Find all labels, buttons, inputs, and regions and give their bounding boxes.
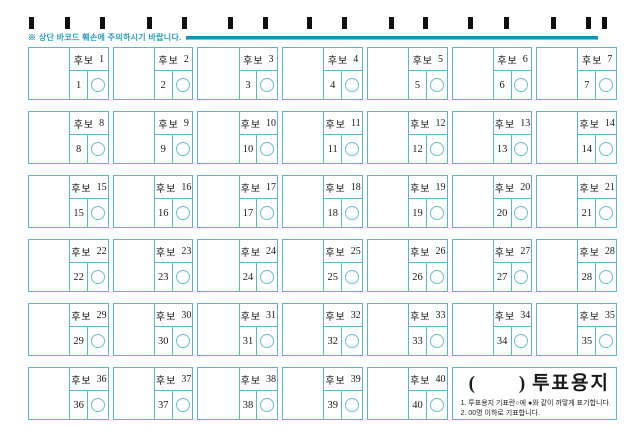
candidate-cell: 후보 10 10 bbox=[197, 111, 278, 164]
candidate-cell: 후보 9 9 bbox=[113, 111, 194, 164]
candidate-name-area bbox=[537, 112, 578, 163]
candidate-cell: 후보 22 22 bbox=[28, 239, 109, 292]
candidate-label-prefix: 후보 bbox=[325, 180, 345, 195]
mark-circle[interactable] bbox=[91, 142, 105, 156]
candidate-cell: 후보 16 16 bbox=[113, 175, 194, 228]
mark-circle[interactable] bbox=[599, 206, 613, 220]
candidate-info: 후보 15 15 bbox=[70, 176, 108, 227]
mark-area[interactable] bbox=[596, 263, 616, 291]
mark-circle[interactable] bbox=[260, 78, 274, 92]
candidate-number: 13 bbox=[494, 135, 512, 163]
candidate-label-prefix: 후보 bbox=[328, 52, 348, 67]
candidate-label-prefix: 후보 bbox=[325, 308, 345, 323]
mark-row: 30 bbox=[155, 327, 193, 355]
candidate-label: 후보 26 bbox=[409, 240, 447, 263]
mark-circle[interactable] bbox=[430, 78, 444, 92]
candidate-name-area bbox=[114, 176, 155, 227]
mark-row: 22 bbox=[70, 263, 108, 291]
candidate-label: 후보 6 bbox=[494, 48, 532, 71]
candidate-label: 후보 39 bbox=[324, 368, 362, 391]
candidate-label-number: 22 bbox=[97, 246, 107, 257]
candidate-cell: 후보 26 26 bbox=[367, 239, 448, 292]
candidate-number: 5 bbox=[409, 71, 427, 99]
candidate-label-prefix: 후보 bbox=[413, 52, 433, 67]
mark-circle[interactable] bbox=[260, 142, 274, 156]
candidate-label-prefix: 후보 bbox=[410, 308, 430, 323]
candidate-label: 후보 31 bbox=[240, 304, 278, 327]
candidate-label: 후보 7 bbox=[578, 48, 616, 71]
mark-row: 33 bbox=[409, 327, 447, 355]
candidate-label-prefix: 후보 bbox=[241, 244, 261, 259]
candidate-label-prefix: 후보 bbox=[410, 372, 430, 387]
instruction-line-2: 2. 00명 이하로 기표합니다. bbox=[461, 409, 610, 417]
candidate-info: 후보 19 19 bbox=[409, 176, 447, 227]
candidate-label: 후보 13 bbox=[494, 112, 532, 135]
barcode-strip bbox=[0, 0, 630, 32]
mark-area[interactable] bbox=[512, 327, 532, 355]
candidate-cell: 후보 23 23 bbox=[113, 239, 194, 292]
candidate-label: 후보 24 bbox=[240, 240, 278, 263]
mark-circle[interactable] bbox=[176, 78, 190, 92]
mark-circle[interactable] bbox=[514, 142, 528, 156]
candidate-number: 33 bbox=[409, 327, 427, 355]
candidate-label-number: 27 bbox=[520, 246, 530, 257]
mark-row: 3 bbox=[240, 71, 278, 99]
mark-circle[interactable] bbox=[176, 206, 190, 220]
mark-area[interactable] bbox=[88, 391, 108, 419]
candidate-label-prefix: 후보 bbox=[325, 372, 345, 387]
candidate-label-number: 17 bbox=[266, 182, 276, 193]
mark-row: 34 bbox=[494, 327, 532, 355]
candidate-number: 32 bbox=[324, 327, 342, 355]
mark-row: 6 bbox=[494, 71, 532, 99]
candidate-label-prefix: 후보 bbox=[158, 116, 178, 131]
candidate-number: 36 bbox=[70, 391, 88, 419]
candidate-cell: 후보 25 25 bbox=[282, 239, 363, 292]
mark-circle[interactable] bbox=[260, 270, 274, 284]
mark-circle[interactable] bbox=[430, 270, 444, 284]
candidate-label-number: 34 bbox=[520, 310, 530, 321]
mark-circle[interactable] bbox=[345, 78, 359, 92]
candidate-label-prefix: 후보 bbox=[495, 180, 515, 195]
candidate-name-area bbox=[29, 240, 70, 291]
candidate-label-number: 14 bbox=[605, 118, 615, 129]
mark-area[interactable] bbox=[88, 135, 108, 163]
mark-circle[interactable] bbox=[176, 334, 190, 348]
candidate-label-number: 25 bbox=[351, 246, 361, 257]
candidate-name-area bbox=[114, 368, 155, 419]
candidate-label: 후보 35 bbox=[578, 304, 616, 327]
mark-row: 18 bbox=[324, 199, 362, 227]
candidate-label-prefix: 후보 bbox=[497, 52, 517, 67]
title-label: 투표용지 bbox=[532, 372, 610, 396]
mark-area[interactable] bbox=[342, 327, 362, 355]
candidate-info: 후보 6 6 bbox=[494, 48, 532, 99]
mark-area[interactable] bbox=[173, 71, 193, 99]
candidate-info: 후보 10 10 bbox=[240, 112, 278, 163]
candidate-cell: 후보 34 34 bbox=[452, 303, 533, 356]
mark-area[interactable] bbox=[596, 199, 616, 227]
candidate-label: 후보 10 bbox=[240, 112, 278, 135]
mark-circle[interactable] bbox=[430, 142, 444, 156]
barcode-mark bbox=[602, 17, 607, 29]
candidate-label: 후보 36 bbox=[70, 368, 108, 391]
candidate-label-number: 40 bbox=[435, 374, 445, 385]
mark-area[interactable] bbox=[257, 391, 277, 419]
mark-area[interactable] bbox=[88, 327, 108, 355]
mark-circle[interactable] bbox=[345, 206, 359, 220]
candidate-info: 후보 34 34 bbox=[494, 304, 532, 355]
candidate-label: 후보 34 bbox=[494, 304, 532, 327]
mark-row: 29 bbox=[70, 327, 108, 355]
candidate-label: 후보 9 bbox=[155, 112, 193, 135]
barcode-mark bbox=[423, 17, 428, 29]
candidate-label-prefix: 후보 bbox=[495, 116, 515, 131]
candidate-info: 후보 21 21 bbox=[578, 176, 616, 227]
barcode-mark bbox=[100, 17, 105, 29]
candidate-label-number: 2 bbox=[184, 54, 189, 65]
candidate-label-number: 39 bbox=[351, 374, 361, 385]
candidate-label-prefix: 후보 bbox=[241, 372, 261, 387]
mark-circle[interactable] bbox=[345, 142, 359, 156]
candidate-label-number: 4 bbox=[353, 54, 358, 65]
candidate-label-number: 30 bbox=[181, 310, 191, 321]
candidate-label: 후보 38 bbox=[240, 368, 278, 391]
mark-area[interactable] bbox=[173, 391, 193, 419]
mark-circle[interactable] bbox=[599, 142, 613, 156]
mark-row: 20 bbox=[494, 199, 532, 227]
candidate-label-number: 18 bbox=[351, 182, 361, 193]
mark-circle[interactable] bbox=[514, 78, 528, 92]
mark-area[interactable] bbox=[512, 263, 532, 291]
candidate-label: 후보 5 bbox=[409, 48, 447, 71]
candidate-name-area bbox=[29, 112, 70, 163]
candidate-info: 후보 36 36 bbox=[70, 368, 108, 419]
candidate-name-area bbox=[198, 368, 239, 419]
candidate-name-area bbox=[368, 304, 409, 355]
candidate-label-prefix: 후보 bbox=[156, 372, 176, 387]
candidate-name-area bbox=[114, 240, 155, 291]
candidate-info: 후보 7 7 bbox=[578, 48, 616, 99]
candidate-label: 후보 32 bbox=[324, 304, 362, 327]
candidate-label-prefix: 후보 bbox=[410, 244, 430, 259]
candidate-info: 후보 5 5 bbox=[409, 48, 447, 99]
mark-row: 1 bbox=[70, 71, 108, 99]
candidate-cell: 후보 14 14 bbox=[536, 111, 617, 164]
candidate-name-area bbox=[198, 304, 239, 355]
candidate-label-number: 19 bbox=[435, 182, 445, 193]
mark-area[interactable] bbox=[173, 263, 193, 291]
mark-circle[interactable] bbox=[345, 334, 359, 348]
ballot-title: ( ) 투표용지 bbox=[461, 372, 610, 396]
mark-circle[interactable] bbox=[514, 206, 528, 220]
candidate-number: 26 bbox=[409, 263, 427, 291]
candidate-label: 후보 23 bbox=[155, 240, 193, 263]
candidate-label-number: 36 bbox=[97, 374, 107, 385]
candidate-name-area bbox=[453, 176, 494, 227]
mark-circle[interactable] bbox=[599, 334, 613, 348]
title-paren-open: ( bbox=[469, 372, 475, 396]
mark-area[interactable] bbox=[342, 263, 362, 291]
candidate-info: 후보 22 22 bbox=[70, 240, 108, 291]
candidate-label: 후보 30 bbox=[155, 304, 193, 327]
candidate-number: 23 bbox=[155, 263, 173, 291]
candidate-name-area bbox=[29, 48, 70, 99]
candidate-cell: 후보 37 37 bbox=[113, 367, 194, 420]
mark-area[interactable] bbox=[173, 327, 193, 355]
candidate-number: 9 bbox=[155, 135, 173, 163]
candidate-name-area bbox=[198, 176, 239, 227]
candidate-number: 34 bbox=[494, 327, 512, 355]
mark-area[interactable] bbox=[257, 199, 277, 227]
mark-circle[interactable] bbox=[176, 270, 190, 284]
mark-area[interactable] bbox=[596, 327, 616, 355]
candidate-label: 후보 4 bbox=[324, 48, 362, 71]
mark-area[interactable] bbox=[427, 327, 447, 355]
mark-area[interactable] bbox=[596, 135, 616, 163]
candidate-name-area bbox=[368, 368, 409, 419]
candidate-label-prefix: 후보 bbox=[71, 308, 91, 323]
candidate-cell: 후보 40 40 bbox=[367, 367, 448, 420]
candidate-cell: 후보 28 28 bbox=[536, 239, 617, 292]
candidate-label-prefix: 후보 bbox=[243, 52, 263, 67]
mark-circle[interactable] bbox=[91, 398, 105, 412]
candidate-number: 21 bbox=[578, 199, 596, 227]
mark-area[interactable] bbox=[88, 199, 108, 227]
candidate-number: 12 bbox=[409, 135, 427, 163]
candidate-number: 17 bbox=[240, 199, 258, 227]
candidate-name-area bbox=[283, 368, 324, 419]
candidate-info: 후보 8 8 bbox=[70, 112, 108, 163]
candidate-label: 후보 20 bbox=[494, 176, 532, 199]
mark-area[interactable] bbox=[342, 135, 362, 163]
candidate-label-prefix: 후보 bbox=[241, 308, 261, 323]
candidate-label: 후보 14 bbox=[578, 112, 616, 135]
candidate-name-area bbox=[453, 48, 494, 99]
mark-area[interactable] bbox=[427, 199, 447, 227]
candidate-cell: 후보 31 31 bbox=[197, 303, 278, 356]
candidate-number: 2 bbox=[155, 71, 173, 99]
candidate-label: 후보 18 bbox=[324, 176, 362, 199]
candidate-name-area bbox=[453, 240, 494, 291]
mark-row: 2 bbox=[155, 71, 193, 99]
mark-area[interactable] bbox=[512, 199, 532, 227]
mark-circle[interactable] bbox=[599, 270, 613, 284]
mark-area[interactable] bbox=[257, 263, 277, 291]
candidate-label-number: 13 bbox=[520, 118, 530, 129]
mark-row: 40 bbox=[409, 391, 447, 419]
candidate-number: 10 bbox=[240, 135, 258, 163]
candidate-cell: 후보 12 12 bbox=[367, 111, 448, 164]
candidate-name-area bbox=[114, 304, 155, 355]
mark-circle[interactable] bbox=[176, 142, 190, 156]
candidate-label-number: 12 bbox=[435, 118, 445, 129]
candidate-number: 16 bbox=[155, 199, 173, 227]
mark-area[interactable] bbox=[596, 71, 616, 99]
candidate-number: 37 bbox=[155, 391, 173, 419]
mark-row: 28 bbox=[578, 263, 616, 291]
mark-area[interactable] bbox=[173, 199, 193, 227]
mark-row: 32 bbox=[324, 327, 362, 355]
candidate-info: 후보 18 18 bbox=[324, 176, 362, 227]
candidate-number: 3 bbox=[240, 71, 258, 99]
candidate-label-prefix: 후보 bbox=[74, 52, 94, 67]
candidate-name-area bbox=[198, 48, 239, 99]
mark-circle[interactable] bbox=[260, 206, 274, 220]
mark-row: 5 bbox=[409, 71, 447, 99]
mark-row: 19 bbox=[409, 199, 447, 227]
mark-circle[interactable] bbox=[430, 334, 444, 348]
mark-row: 7 bbox=[578, 71, 616, 99]
header-accent-line bbox=[186, 36, 598, 40]
mark-area[interactable] bbox=[427, 263, 447, 291]
mark-row: 4 bbox=[324, 71, 362, 99]
candidate-label: 후보 37 bbox=[155, 368, 193, 391]
mark-circle[interactable] bbox=[176, 398, 190, 412]
candidate-info: 후보 31 31 bbox=[240, 304, 278, 355]
candidate-info: 후보 12 12 bbox=[409, 112, 447, 163]
barcode-mark bbox=[586, 17, 591, 29]
candidate-label-number: 37 bbox=[181, 374, 191, 385]
candidate-name-area bbox=[29, 176, 70, 227]
candidate-cell: 후보 19 19 bbox=[367, 175, 448, 228]
barcode-mark bbox=[342, 17, 347, 29]
candidate-label-prefix: 후보 bbox=[241, 180, 261, 195]
mark-area[interactable] bbox=[342, 199, 362, 227]
mark-area[interactable] bbox=[427, 135, 447, 163]
candidate-number: 6 bbox=[494, 71, 512, 99]
candidate-cell: 후보 6 6 bbox=[452, 47, 533, 100]
candidate-label: 후보 2 bbox=[155, 48, 193, 71]
candidate-label-prefix: 후보 bbox=[580, 308, 600, 323]
mark-area[interactable] bbox=[512, 135, 532, 163]
mark-row: 15 bbox=[70, 199, 108, 227]
candidate-label-number: 1 bbox=[99, 54, 104, 65]
candidate-name-area bbox=[283, 48, 324, 99]
candidate-label-prefix: 후보 bbox=[410, 180, 430, 195]
mark-row: 16 bbox=[155, 199, 193, 227]
mark-area[interactable] bbox=[342, 71, 362, 99]
candidate-cell: 후보 17 17 bbox=[197, 175, 278, 228]
candidate-label-number: 29 bbox=[97, 310, 107, 321]
mark-area[interactable] bbox=[342, 391, 362, 419]
candidate-label: 후보 27 bbox=[494, 240, 532, 263]
candidate-name-area bbox=[453, 112, 494, 163]
mark-area[interactable] bbox=[427, 71, 447, 99]
candidate-label: 후보 17 bbox=[240, 176, 278, 199]
candidate-info: 후보 27 27 bbox=[494, 240, 532, 291]
mark-area[interactable] bbox=[88, 71, 108, 99]
candidate-label-number: 20 bbox=[520, 182, 530, 193]
mark-area[interactable] bbox=[88, 263, 108, 291]
candidate-label-number: 26 bbox=[435, 246, 445, 257]
candidate-info: 후보 40 40 bbox=[409, 368, 447, 419]
mark-circle[interactable] bbox=[345, 398, 359, 412]
mark-circle[interactable] bbox=[599, 78, 613, 92]
candidate-label-prefix: 후보 bbox=[326, 116, 346, 131]
candidate-label: 후보 11 bbox=[324, 112, 362, 135]
candidate-label-number: 6 bbox=[523, 54, 528, 65]
mark-circle[interactable] bbox=[91, 334, 105, 348]
mark-row: 26 bbox=[409, 263, 447, 291]
mark-circle[interactable] bbox=[260, 334, 274, 348]
candidate-label: 후보 22 bbox=[70, 240, 108, 263]
candidate-number: 4 bbox=[324, 71, 342, 99]
candidate-label-number: 8 bbox=[99, 118, 104, 129]
candidate-cell: 후보 2 2 bbox=[113, 47, 194, 100]
barcode-mark bbox=[29, 17, 34, 29]
candidate-name-area bbox=[283, 304, 324, 355]
candidate-number: 15 bbox=[70, 199, 88, 227]
mark-row: 37 bbox=[155, 391, 193, 419]
candidate-number: 30 bbox=[155, 327, 173, 355]
mark-area[interactable] bbox=[427, 391, 447, 419]
candidate-cell: 후보 36 36 bbox=[28, 367, 109, 420]
candidate-cell: 후보 30 30 bbox=[113, 303, 194, 356]
candidate-label-number: 32 bbox=[351, 310, 361, 321]
candidate-info: 후보 17 17 bbox=[240, 176, 278, 227]
candidate-label-prefix: 후보 bbox=[71, 244, 91, 259]
mark-area[interactable] bbox=[257, 135, 277, 163]
candidate-number: 25 bbox=[324, 263, 342, 291]
candidate-label: 후보 3 bbox=[240, 48, 278, 71]
candidate-label-number: 7 bbox=[607, 54, 612, 65]
candidate-label-number: 11 bbox=[351, 118, 361, 129]
candidate-info: 후보 38 38 bbox=[240, 368, 278, 419]
candidate-cell: 후보 15 15 bbox=[28, 175, 109, 228]
barcode-mark bbox=[263, 17, 268, 29]
candidate-name-area bbox=[114, 48, 155, 99]
candidate-cell: 후보 38 38 bbox=[197, 367, 278, 420]
candidate-cell: 후보 3 3 bbox=[197, 47, 278, 100]
mark-area[interactable] bbox=[173, 135, 193, 163]
mark-row: 17 bbox=[240, 199, 278, 227]
mark-area[interactable] bbox=[512, 71, 532, 99]
candidate-info: 후보 39 39 bbox=[324, 368, 362, 419]
mark-circle[interactable] bbox=[430, 206, 444, 220]
mark-circle[interactable] bbox=[514, 270, 528, 284]
ballot-title-box: ( ) 투표용지 1. 투표용지 기표란○에 ●와 같이 까맣게 표기합니다. … bbox=[452, 367, 617, 420]
mark-row: 27 bbox=[494, 263, 532, 291]
candidate-name-area bbox=[29, 304, 70, 355]
candidate-label-prefix: 후보 bbox=[580, 116, 600, 131]
mark-circle[interactable] bbox=[514, 334, 528, 348]
candidate-name-area bbox=[537, 304, 578, 355]
candidate-label-number: 5 bbox=[438, 54, 443, 65]
barcode-mark bbox=[182, 17, 187, 29]
candidate-info: 후보 1 1 bbox=[70, 48, 108, 99]
candidate-label-prefix: 후보 bbox=[71, 372, 91, 387]
barcode-mark bbox=[147, 17, 152, 29]
mark-circle[interactable] bbox=[430, 398, 444, 412]
mark-circle[interactable] bbox=[345, 270, 359, 284]
candidate-label-number: 3 bbox=[269, 54, 274, 65]
candidate-label: 후보 33 bbox=[409, 304, 447, 327]
mark-circle[interactable] bbox=[91, 206, 105, 220]
mark-area[interactable] bbox=[257, 327, 277, 355]
candidate-info: 후보 25 25 bbox=[324, 240, 362, 291]
mark-circle[interactable] bbox=[91, 270, 105, 284]
mark-area[interactable] bbox=[257, 71, 277, 99]
mark-circle[interactable] bbox=[260, 398, 274, 412]
candidate-cell: 후보 13 13 bbox=[452, 111, 533, 164]
mark-row: 10 bbox=[240, 135, 278, 163]
candidate-label-number: 35 bbox=[605, 310, 615, 321]
candidate-label-prefix: 후보 bbox=[156, 308, 176, 323]
instruction-line-1: 1. 투표용지 기표란○에 ●와 같이 까맣게 표기합니다. bbox=[461, 399, 610, 409]
candidate-label-number: 23 bbox=[181, 246, 191, 257]
mark-circle[interactable] bbox=[91, 78, 105, 92]
